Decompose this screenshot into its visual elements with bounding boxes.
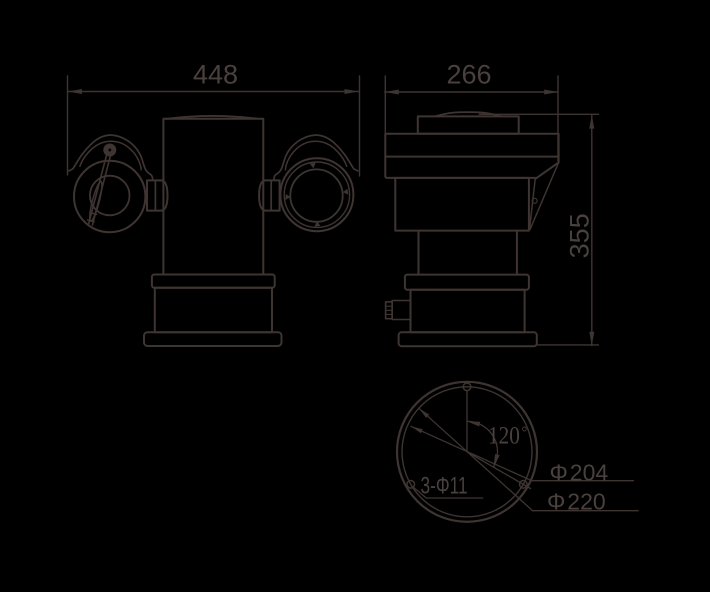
svg-text:Φ 204: Φ 204 (550, 460, 609, 486)
svg-text:3-Φ11: 3-Φ11 (421, 473, 468, 499)
svg-text:120°: 120° (488, 422, 527, 450)
svg-text:Φ 220: Φ 220 (547, 489, 606, 515)
svg-text:266: 266 (446, 60, 491, 90)
svg-text:355: 355 (565, 213, 595, 258)
svg-text:448: 448 (193, 60, 238, 90)
